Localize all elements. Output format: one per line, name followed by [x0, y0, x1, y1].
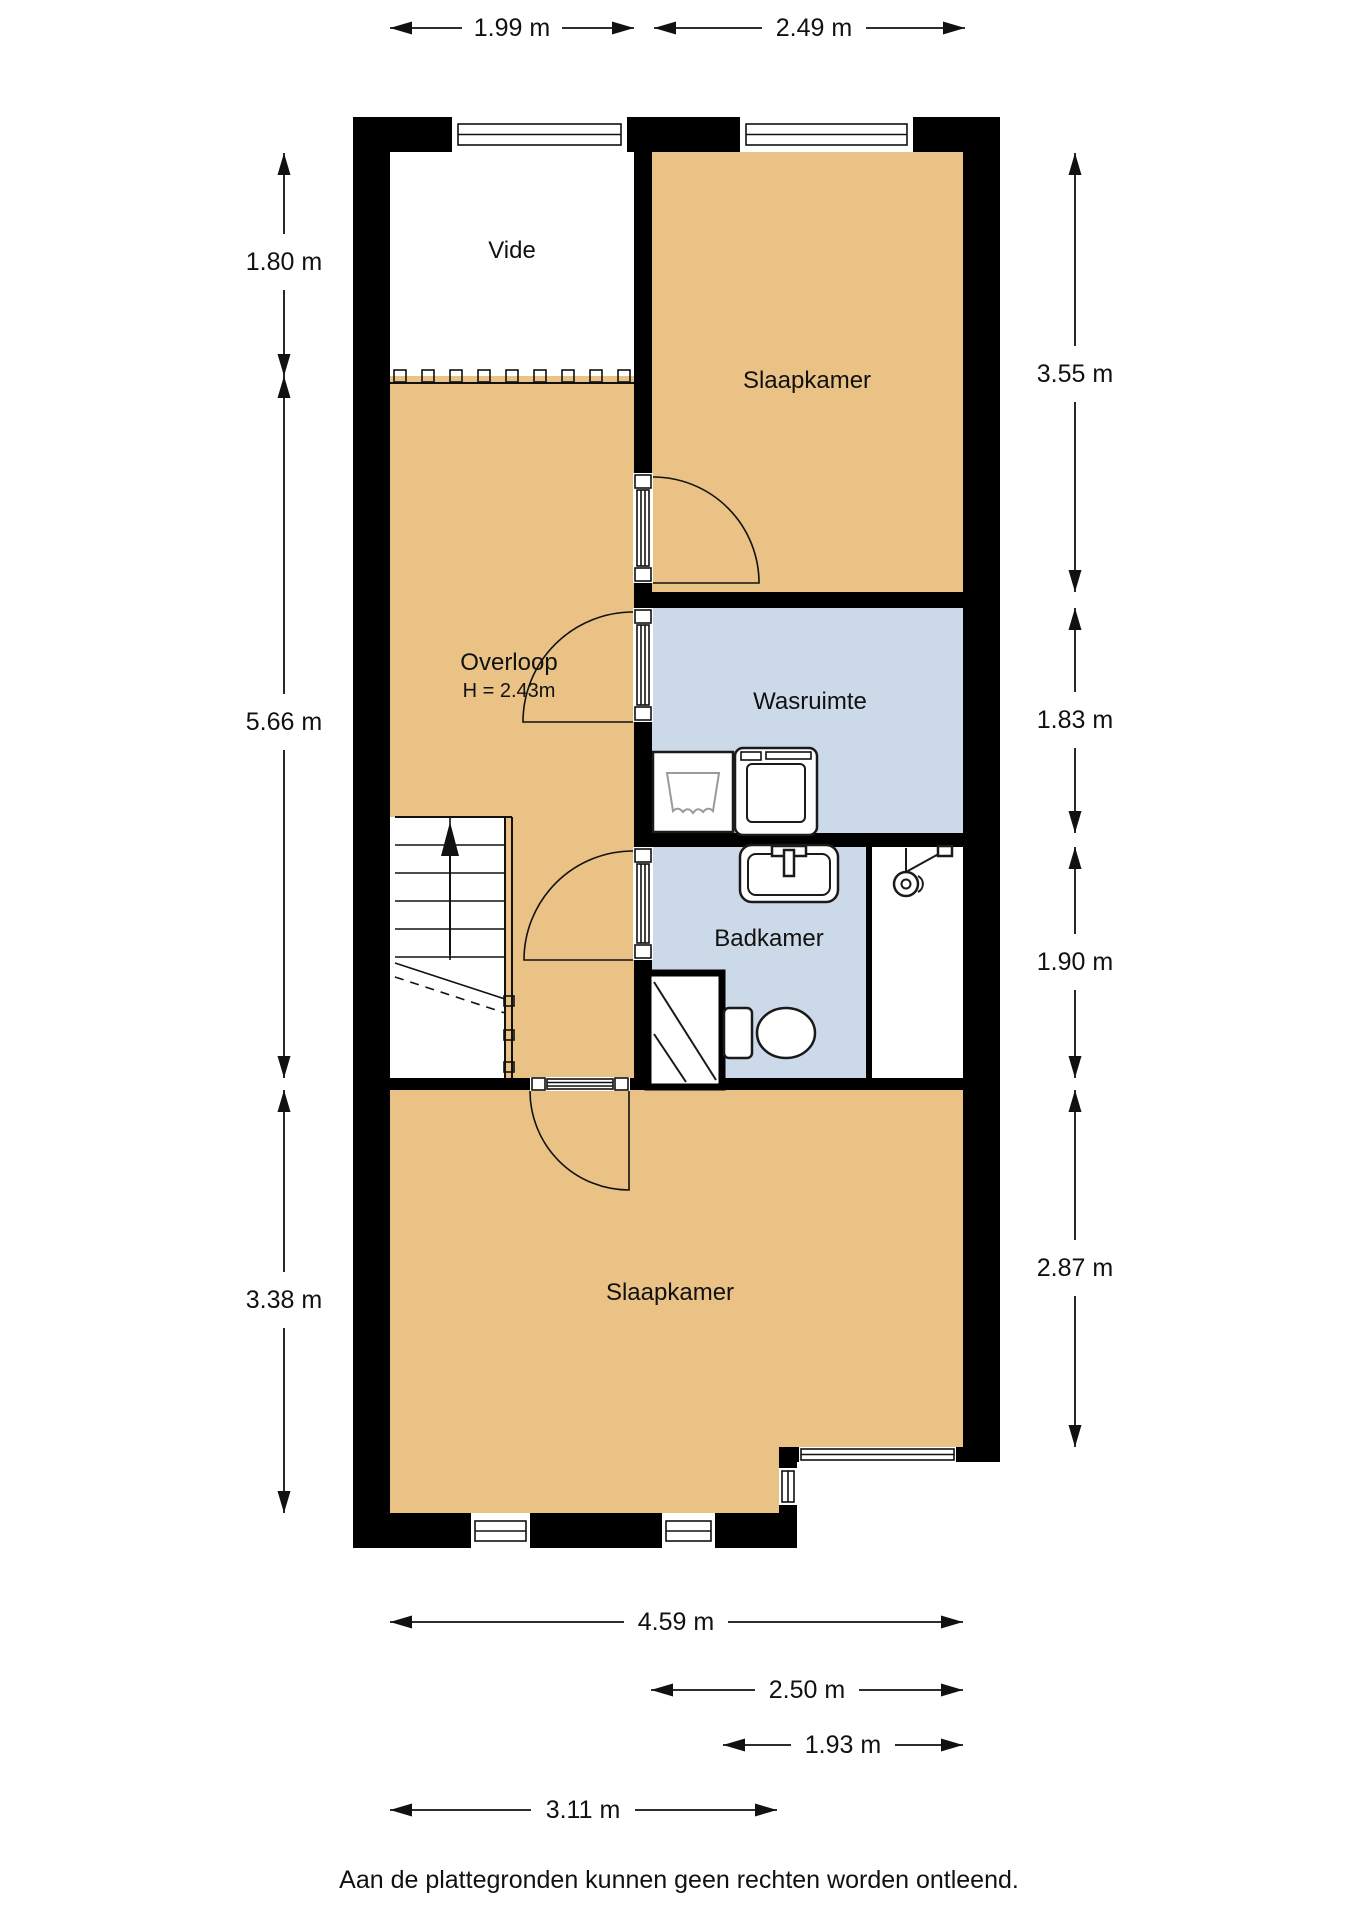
room-label-overloop: Overloop	[460, 649, 557, 676]
floor-plan-page: Vide Slaapkamer Overloop H = 2.43m Wasru…	[0, 0, 1358, 1920]
toilet-icon	[724, 1008, 815, 1058]
dimension-label: 3.55 m	[1037, 360, 1113, 388]
dimension-label: 5.66 m	[246, 708, 322, 736]
dimension-right-3: 1.90 m	[1037, 847, 1113, 1078]
dimension-left-2: 5.66 m	[246, 376, 322, 1078]
room-label-badkamer: Badkamer	[714, 925, 823, 952]
dimension-label: 1.83 m	[1037, 706, 1113, 734]
sink-icon	[740, 845, 838, 902]
dimension-bottom-2: 2.50 m	[651, 1676, 963, 1704]
room-label-vide: Vide	[488, 237, 536, 264]
washing-machine-icon	[735, 748, 817, 835]
stairs	[390, 817, 514, 1078]
dimension-label: 3.11 m	[546, 1796, 621, 1824]
dimension-bottom-4: 3.11 m	[390, 1796, 777, 1824]
dimension-top-1: 1.99 m	[390, 14, 634, 42]
room-label-slaapkamer-bottom: Slaapkamer	[606, 1279, 734, 1306]
dimension-left-1: 1.80 m	[246, 153, 322, 376]
window	[471, 1513, 530, 1548]
dimension-label: 1.80 m	[246, 248, 322, 276]
dimension-label: 3.38 m	[246, 1286, 322, 1314]
window	[740, 117, 913, 152]
dimension-label: 1.90 m	[1037, 948, 1113, 976]
room-height-note: H = 2.43m	[463, 680, 556, 702]
window	[779, 1468, 797, 1505]
duct-shaft-icon	[648, 973, 722, 1087]
dimension-right-4: 2.87 m	[1037, 1090, 1113, 1447]
dimension-bottom-1: 4.59 m	[390, 1608, 963, 1636]
disclaimer-text: Aan de plattegronden kunnen geen rechten…	[339, 1866, 1019, 1894]
room-vide-floor	[390, 152, 634, 384]
window	[452, 117, 627, 152]
dimension-label: 2.49 m	[776, 14, 852, 42]
dimension-right-1: 3.55 m	[1037, 153, 1113, 592]
dimension-top-2: 2.49 m	[654, 14, 965, 42]
dimension-label: 2.50 m	[769, 1676, 845, 1704]
floor-plan: Vide Slaapkamer Overloop H = 2.43m Wasru…	[0, 0, 1358, 1920]
dimension-left-3: 3.38 m	[246, 1090, 322, 1513]
room-label-slaapkamer-top: Slaapkamer	[743, 367, 871, 394]
dimension-label: 1.99 m	[474, 14, 550, 42]
window	[799, 1447, 956, 1462]
window	[662, 1513, 715, 1548]
dimension-right-2: 1.83 m	[1037, 608, 1113, 833]
dimension-label: 1.93 m	[805, 1731, 881, 1759]
room-label-wasruimte: Wasruimte	[753, 688, 867, 715]
dimension-label: 2.87 m	[1037, 1254, 1113, 1282]
dimension-bottom-3: 1.93 m	[723, 1731, 963, 1759]
dimension-label: 4.59 m	[638, 1608, 714, 1636]
laundry-basket-icon	[653, 752, 733, 832]
